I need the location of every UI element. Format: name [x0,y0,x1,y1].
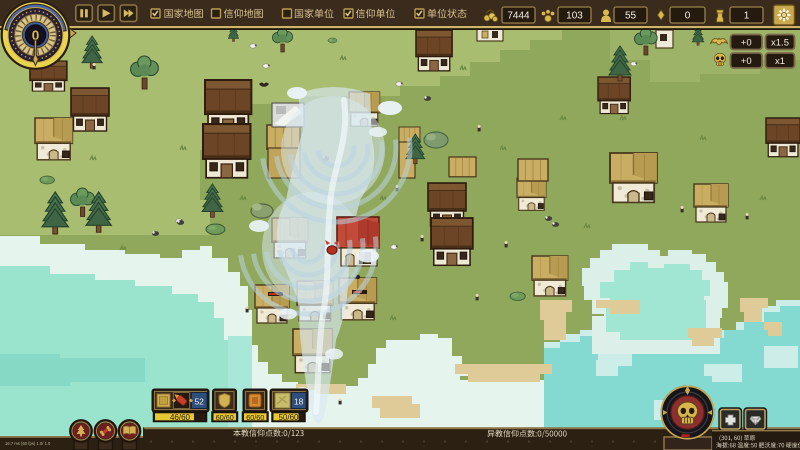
svg-text:+0: +0 [741,56,752,67]
svg-text:55: 55 [625,11,637,22]
svg-text:52: 52 [194,396,204,406]
svg-text:46/60: 46/60 [170,413,191,422]
svg-text:7444: 7444 [507,11,530,22]
svg-text:x1.5: x1.5 [771,37,789,48]
svg-text:16.7 ms (60 fps) 1.0/ 1.0: 16.7 ms (60 fps) 1.0/ 1.0 [5,441,51,446]
svg-text:x1: x1 [775,56,785,67]
svg-text:1: 1 [744,11,750,22]
svg-text:+0: +0 [741,37,752,48]
svg-text:0: 0 [685,11,691,22]
svg-text:60/60: 60/60 [246,413,264,422]
svg-text:18: 18 [294,396,304,406]
svg-text:60/60: 60/60 [216,413,234,422]
svg-text:103: 103 [566,11,583,22]
svg-text:50/60: 50/60 [278,413,299,422]
